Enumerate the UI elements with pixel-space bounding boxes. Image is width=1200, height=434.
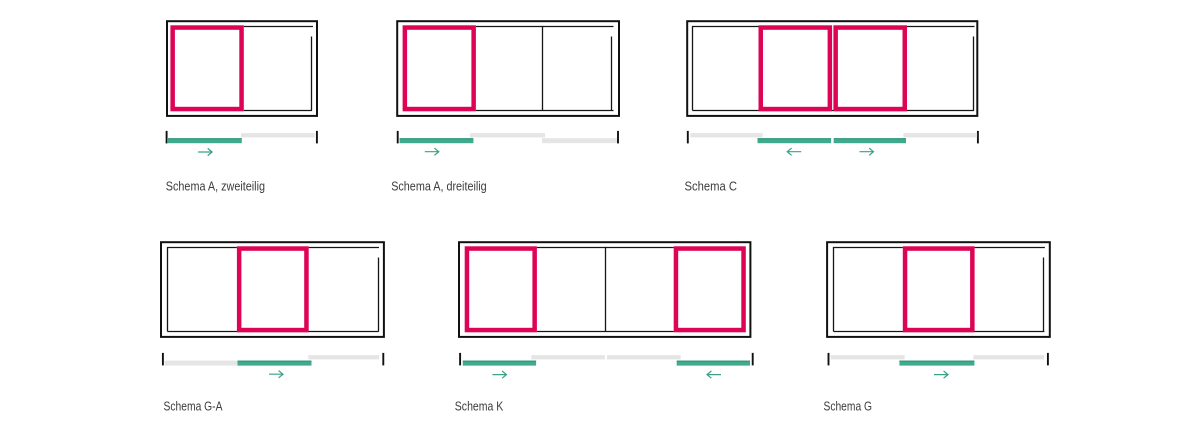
svg-text:Schema G-A: Schema G-A xyxy=(164,399,223,414)
svg-text:Schema C: Schema C xyxy=(685,179,738,194)
svg-text:Schema A, dreiteilig: Schema A, dreiteilig xyxy=(391,179,487,194)
svg-text:Schema G: Schema G xyxy=(824,399,873,414)
svg-text:Schema A, zweiteilig: Schema A, zweiteilig xyxy=(166,179,265,194)
svg-text:Schema K: Schema K xyxy=(455,399,504,414)
